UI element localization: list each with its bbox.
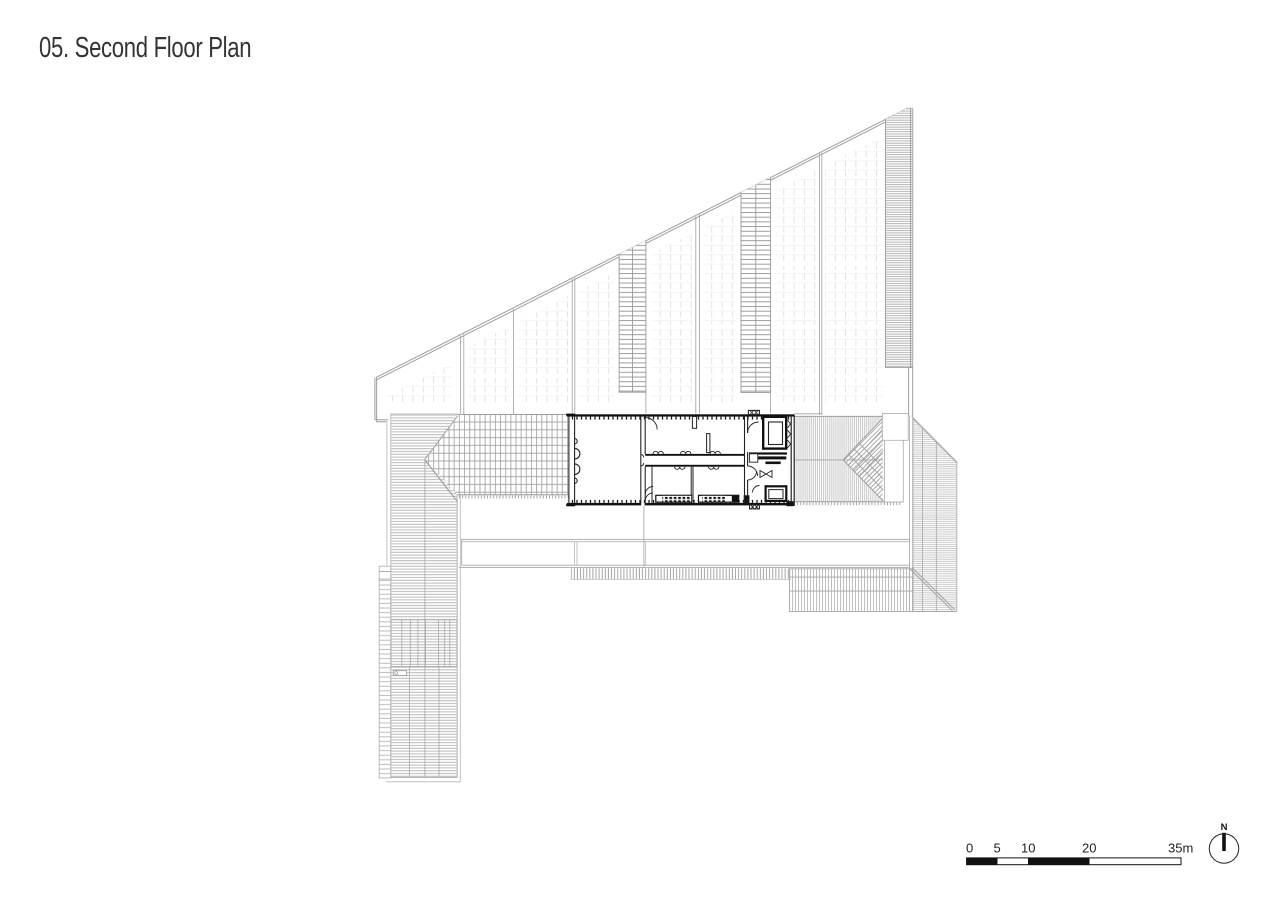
svg-text:5: 5 [994,841,1001,856]
svg-text:10: 10 [1021,841,1035,856]
svg-text:35m: 35m [1168,841,1193,856]
svg-text:N: N [1221,822,1228,833]
svg-text:0: 0 [966,841,973,856]
svg-text:20: 20 [1082,841,1096,856]
